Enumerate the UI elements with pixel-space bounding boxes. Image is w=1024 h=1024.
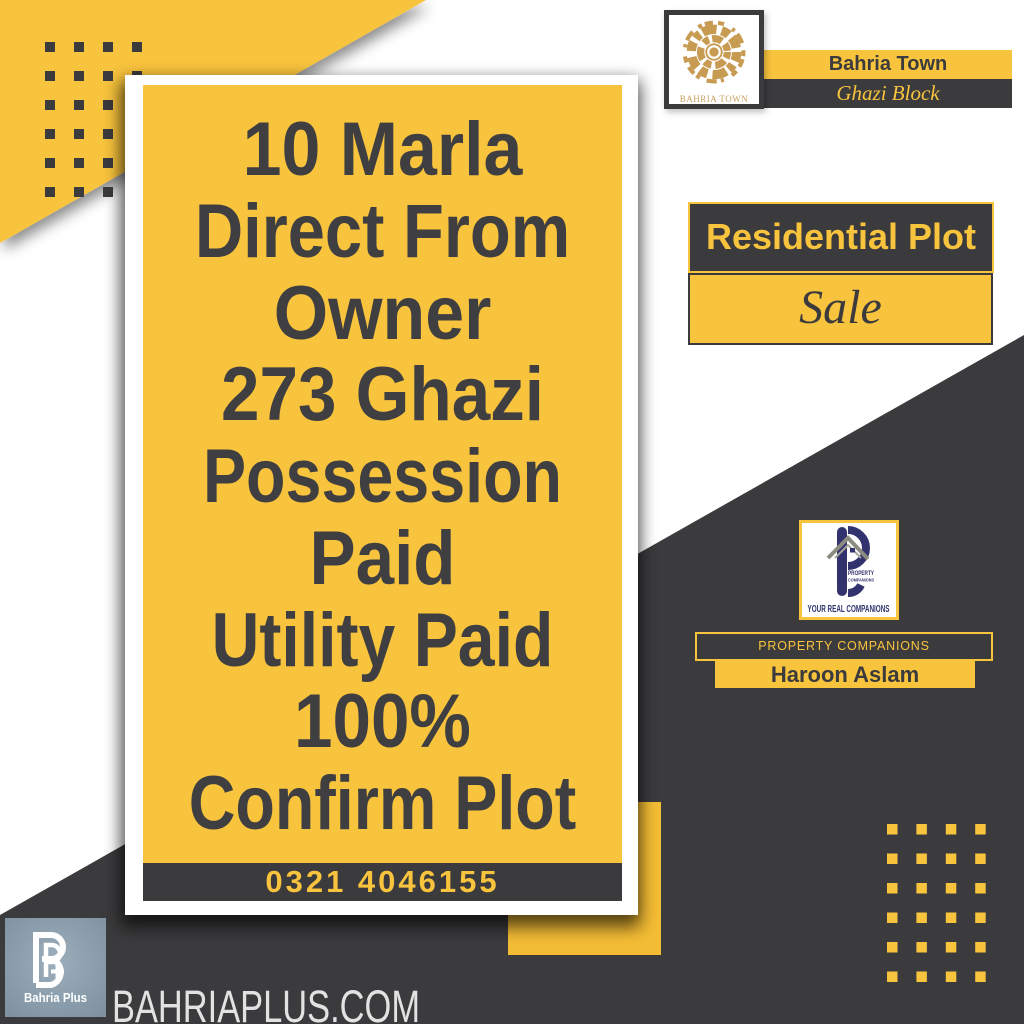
svg-text:COMPANIONS: COMPANIONS	[848, 578, 875, 584]
svg-text:YOUR REAL COMPANIONS: YOUR REAL COMPANIONS	[808, 603, 890, 615]
svg-text:Bahria Plus: Bahria Plus	[24, 991, 87, 1005]
svg-text:PROPERTY: PROPERTY	[848, 571, 874, 577]
svg-text:BAHRIAPLUS.COM: BAHRIAPLUS.COM	[112, 981, 420, 1024]
